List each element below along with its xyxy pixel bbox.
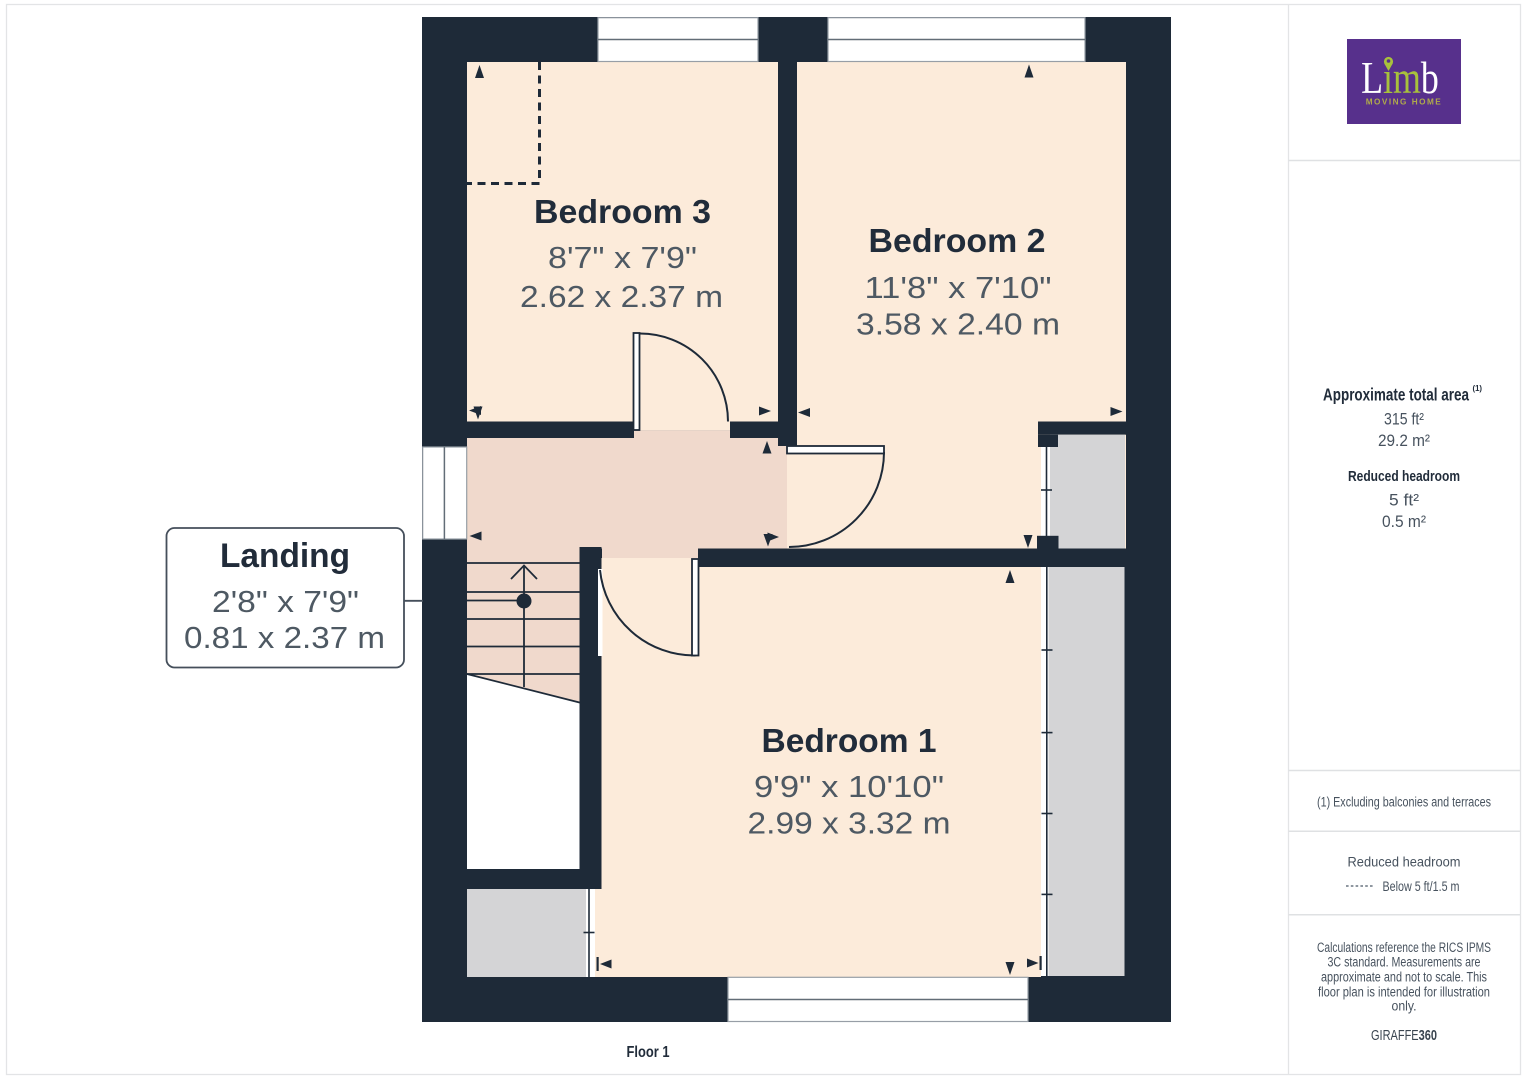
- svg-text:11'8" x 7'10": 11'8" x 7'10": [865, 270, 1052, 305]
- svg-text:0.5 m²: 0.5 m²: [1382, 513, 1426, 531]
- svg-text:(1): (1): [1473, 384, 1483, 393]
- svg-text:2.99 x 3.32 m: 2.99 x 3.32 m: [748, 806, 951, 841]
- svg-text:Landing: Landing: [220, 537, 350, 575]
- svg-text:29.2 m²: 29.2 m²: [1378, 432, 1430, 450]
- svg-text:Bedroom 2: Bedroom 2: [869, 222, 1046, 259]
- svg-text:floor plan is intended for ill: floor plan is intended for illustration: [1318, 984, 1490, 999]
- svg-text:0.81 x 2.37 m: 0.81 x 2.37 m: [184, 620, 385, 655]
- svg-text:5 ft²: 5 ft²: [1389, 492, 1420, 510]
- svg-text:Reduced headroom: Reduced headroom: [1348, 854, 1461, 870]
- svg-text:approximate and not to scale.: approximate and not to scale. This: [1321, 970, 1487, 985]
- svg-text:Approximate total area: Approximate total area: [1323, 385, 1469, 405]
- svg-text:Below 5 ft/1.5 m: Below 5 ft/1.5 m: [1383, 878, 1460, 894]
- svg-text:only.: only.: [1392, 999, 1417, 1014]
- svg-text:Lımb: Lımb: [1361, 52, 1439, 103]
- svg-text:8'7" x 7'9": 8'7" x 7'9": [548, 240, 697, 275]
- svg-text:Floor 1: Floor 1: [627, 1044, 670, 1061]
- svg-text:GIRAFFE360: GIRAFFE360: [1371, 1027, 1437, 1044]
- svg-text:(1) Excluding balconies and te: (1) Excluding balconies and terraces: [1317, 795, 1491, 810]
- svg-text:3C standard. Measurements are: 3C standard. Measurements are: [1328, 955, 1481, 970]
- svg-text:MOVING HOME: MOVING HOME: [1366, 98, 1443, 107]
- svg-text:Bedroom 1: Bedroom 1: [762, 722, 937, 759]
- svg-text:3.58 x 2.40 m: 3.58 x 2.40 m: [856, 307, 1060, 342]
- svg-text:Reduced headroom: Reduced headroom: [1348, 469, 1460, 485]
- svg-text:315 ft²: 315 ft²: [1384, 411, 1424, 429]
- svg-text:Calculations reference the RIC: Calculations reference the RICS IPMS: [1317, 940, 1491, 955]
- svg-text:9'9" x 10'10": 9'9" x 10'10": [754, 769, 944, 804]
- svg-text:2'8" x 7'9": 2'8" x 7'9": [212, 584, 359, 619]
- svg-text:Bedroom 3: Bedroom 3: [534, 193, 711, 230]
- svg-text:2.62 x 2.37 m: 2.62 x 2.37 m: [520, 279, 723, 314]
